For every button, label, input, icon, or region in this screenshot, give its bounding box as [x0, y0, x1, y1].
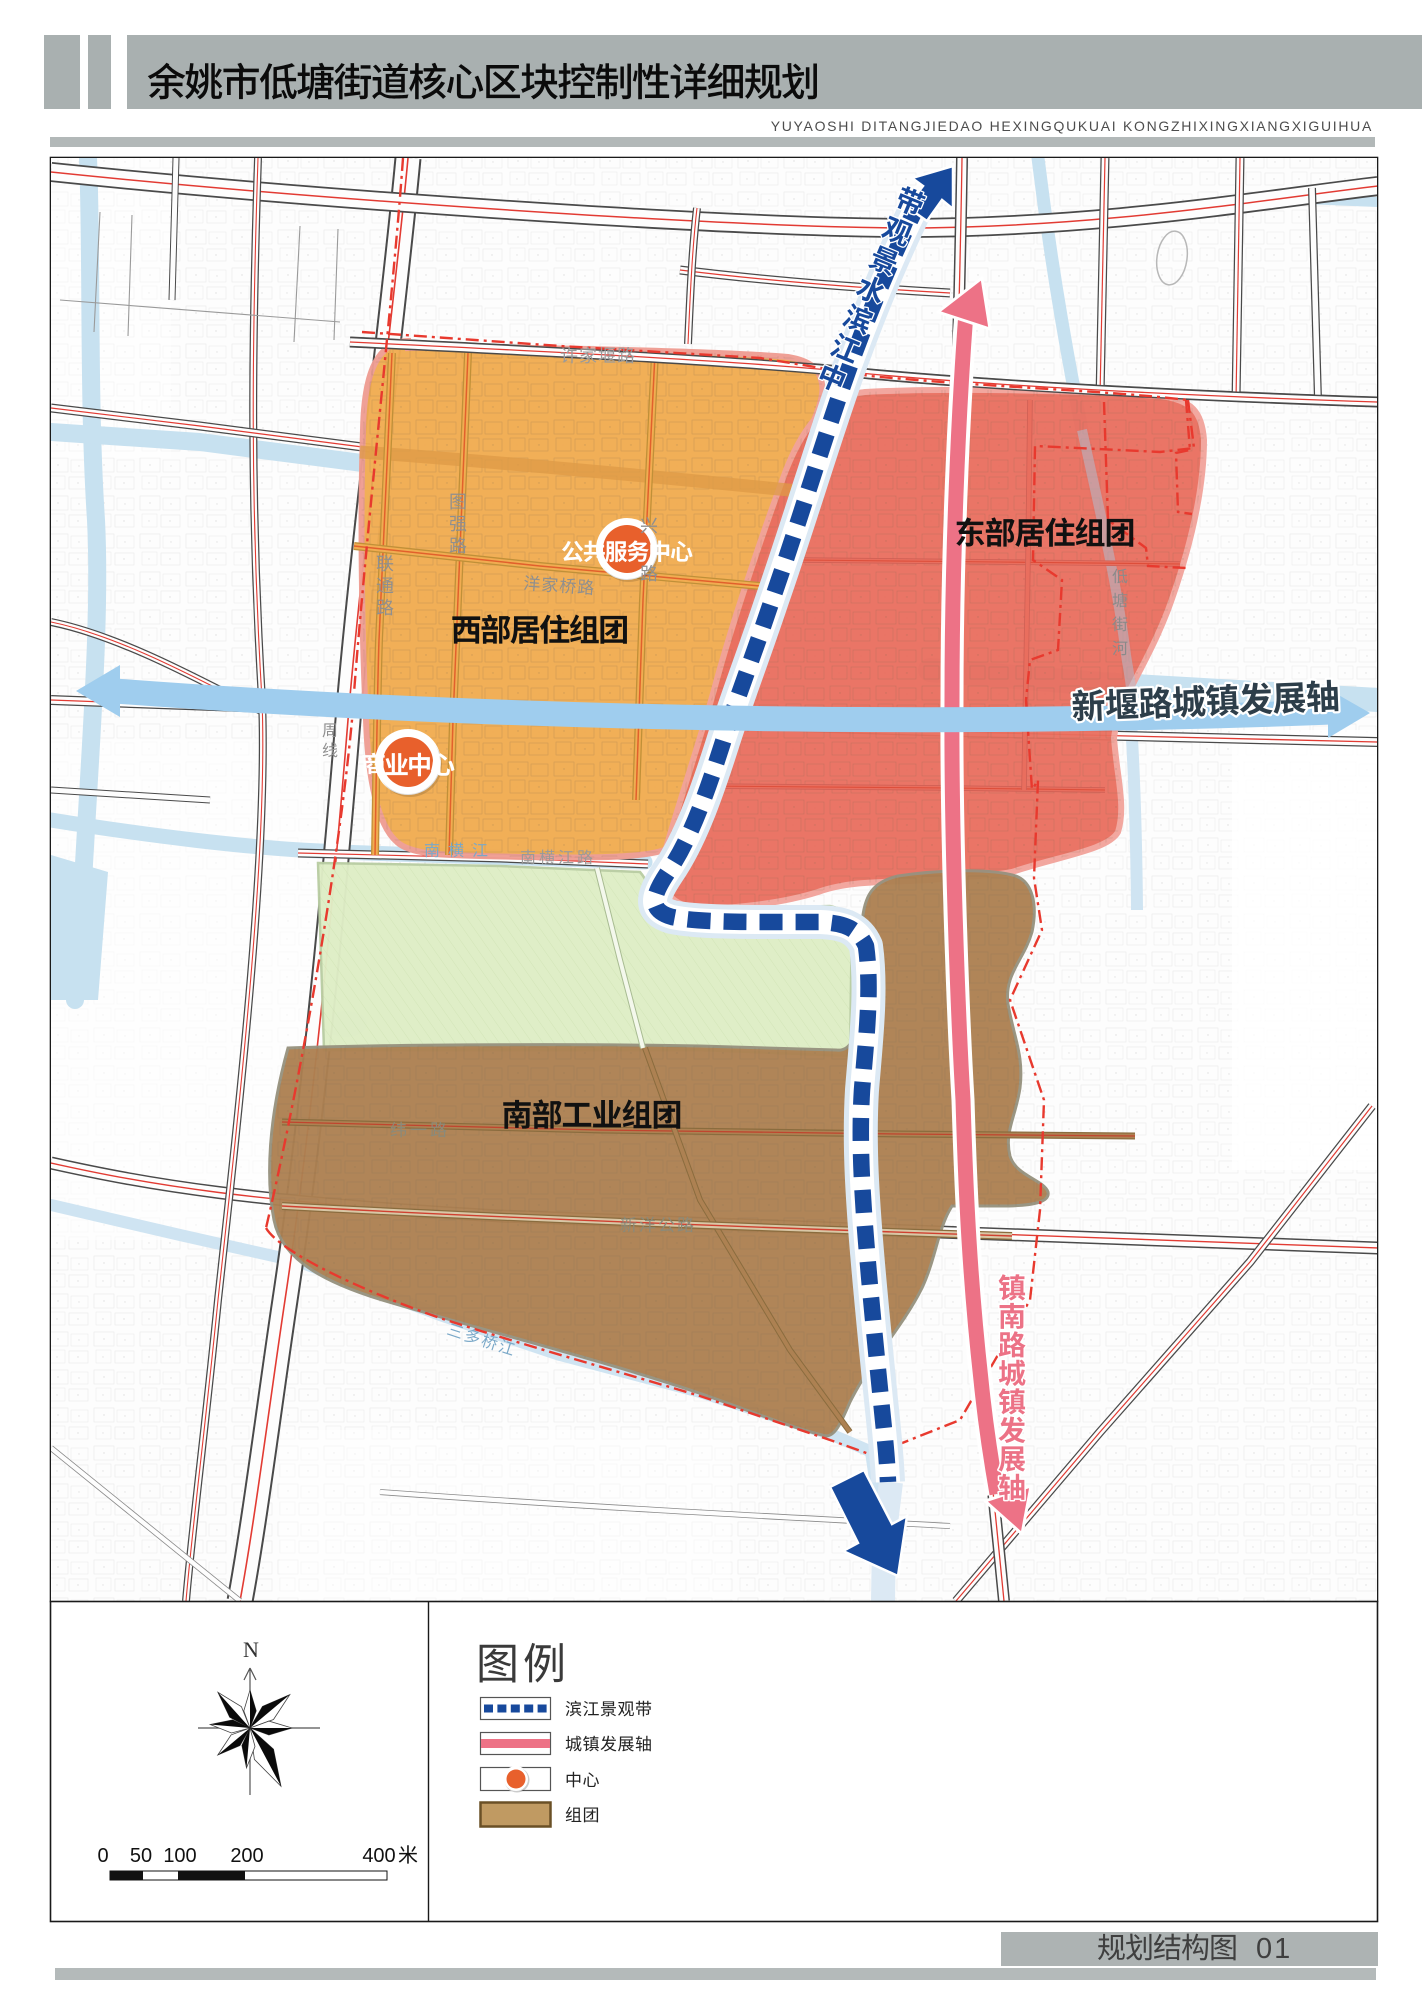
svg-text:01: 01: [1256, 1933, 1292, 1965]
svg-text:N: N: [243, 1637, 259, 1662]
svg-text:YUYAOSHI DITANGJIEDAO HEXINGQU: YUYAOSHI DITANGJIEDAO HEXINGQUKUAI KONGZ…: [771, 118, 1373, 134]
